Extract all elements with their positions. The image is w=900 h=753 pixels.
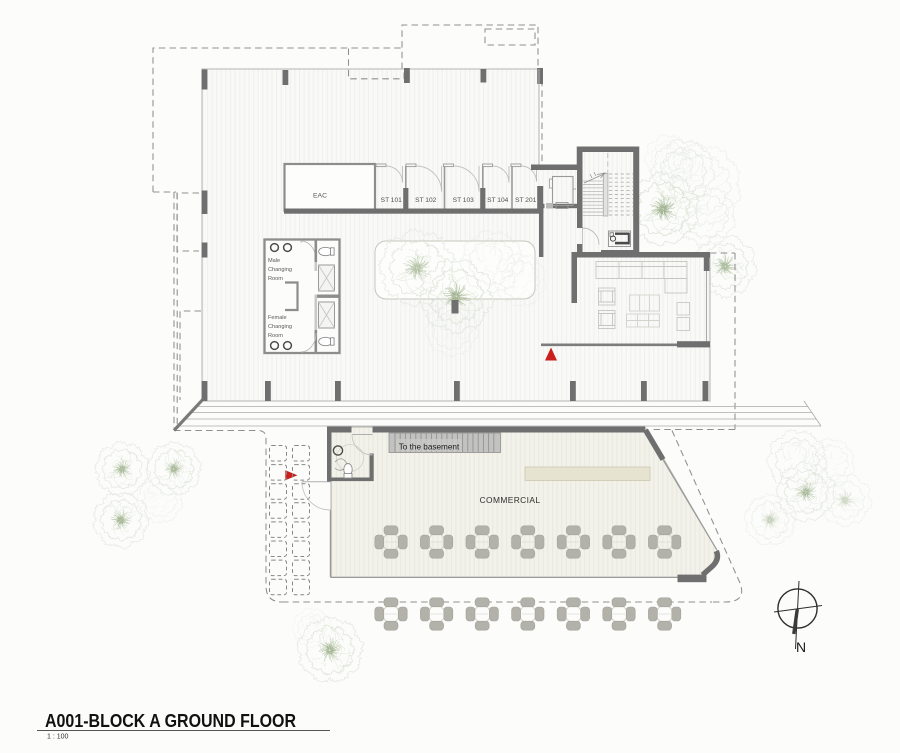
svg-text:N: N bbox=[796, 639, 806, 655]
svg-text:EAC: EAC bbox=[313, 193, 327, 200]
svg-text:ST 102: ST 102 bbox=[415, 197, 436, 204]
svg-text:Female: Female bbox=[268, 315, 287, 321]
svg-text:Room: Room bbox=[268, 276, 283, 282]
svg-text:ST 104: ST 104 bbox=[487, 197, 508, 204]
svg-text:1 : 100: 1 : 100 bbox=[47, 734, 69, 741]
svg-text:Changing: Changing bbox=[268, 267, 292, 273]
svg-text:Room: Room bbox=[268, 333, 283, 339]
svg-text:To the basement: To the basement bbox=[399, 442, 460, 451]
svg-text:A001-BLOCK A GROUND FLOOR: A001-BLOCK A GROUND FLOOR bbox=[45, 710, 296, 731]
svg-text:ST 201: ST 201 bbox=[515, 197, 536, 204]
svg-text:Male: Male bbox=[268, 258, 280, 264]
svg-text:Changing: Changing bbox=[268, 324, 292, 330]
svg-text:COMMERCIAL: COMMERCIAL bbox=[480, 495, 541, 505]
svg-text:ST 103: ST 103 bbox=[453, 197, 474, 204]
svg-text:ST 101: ST 101 bbox=[381, 197, 402, 204]
